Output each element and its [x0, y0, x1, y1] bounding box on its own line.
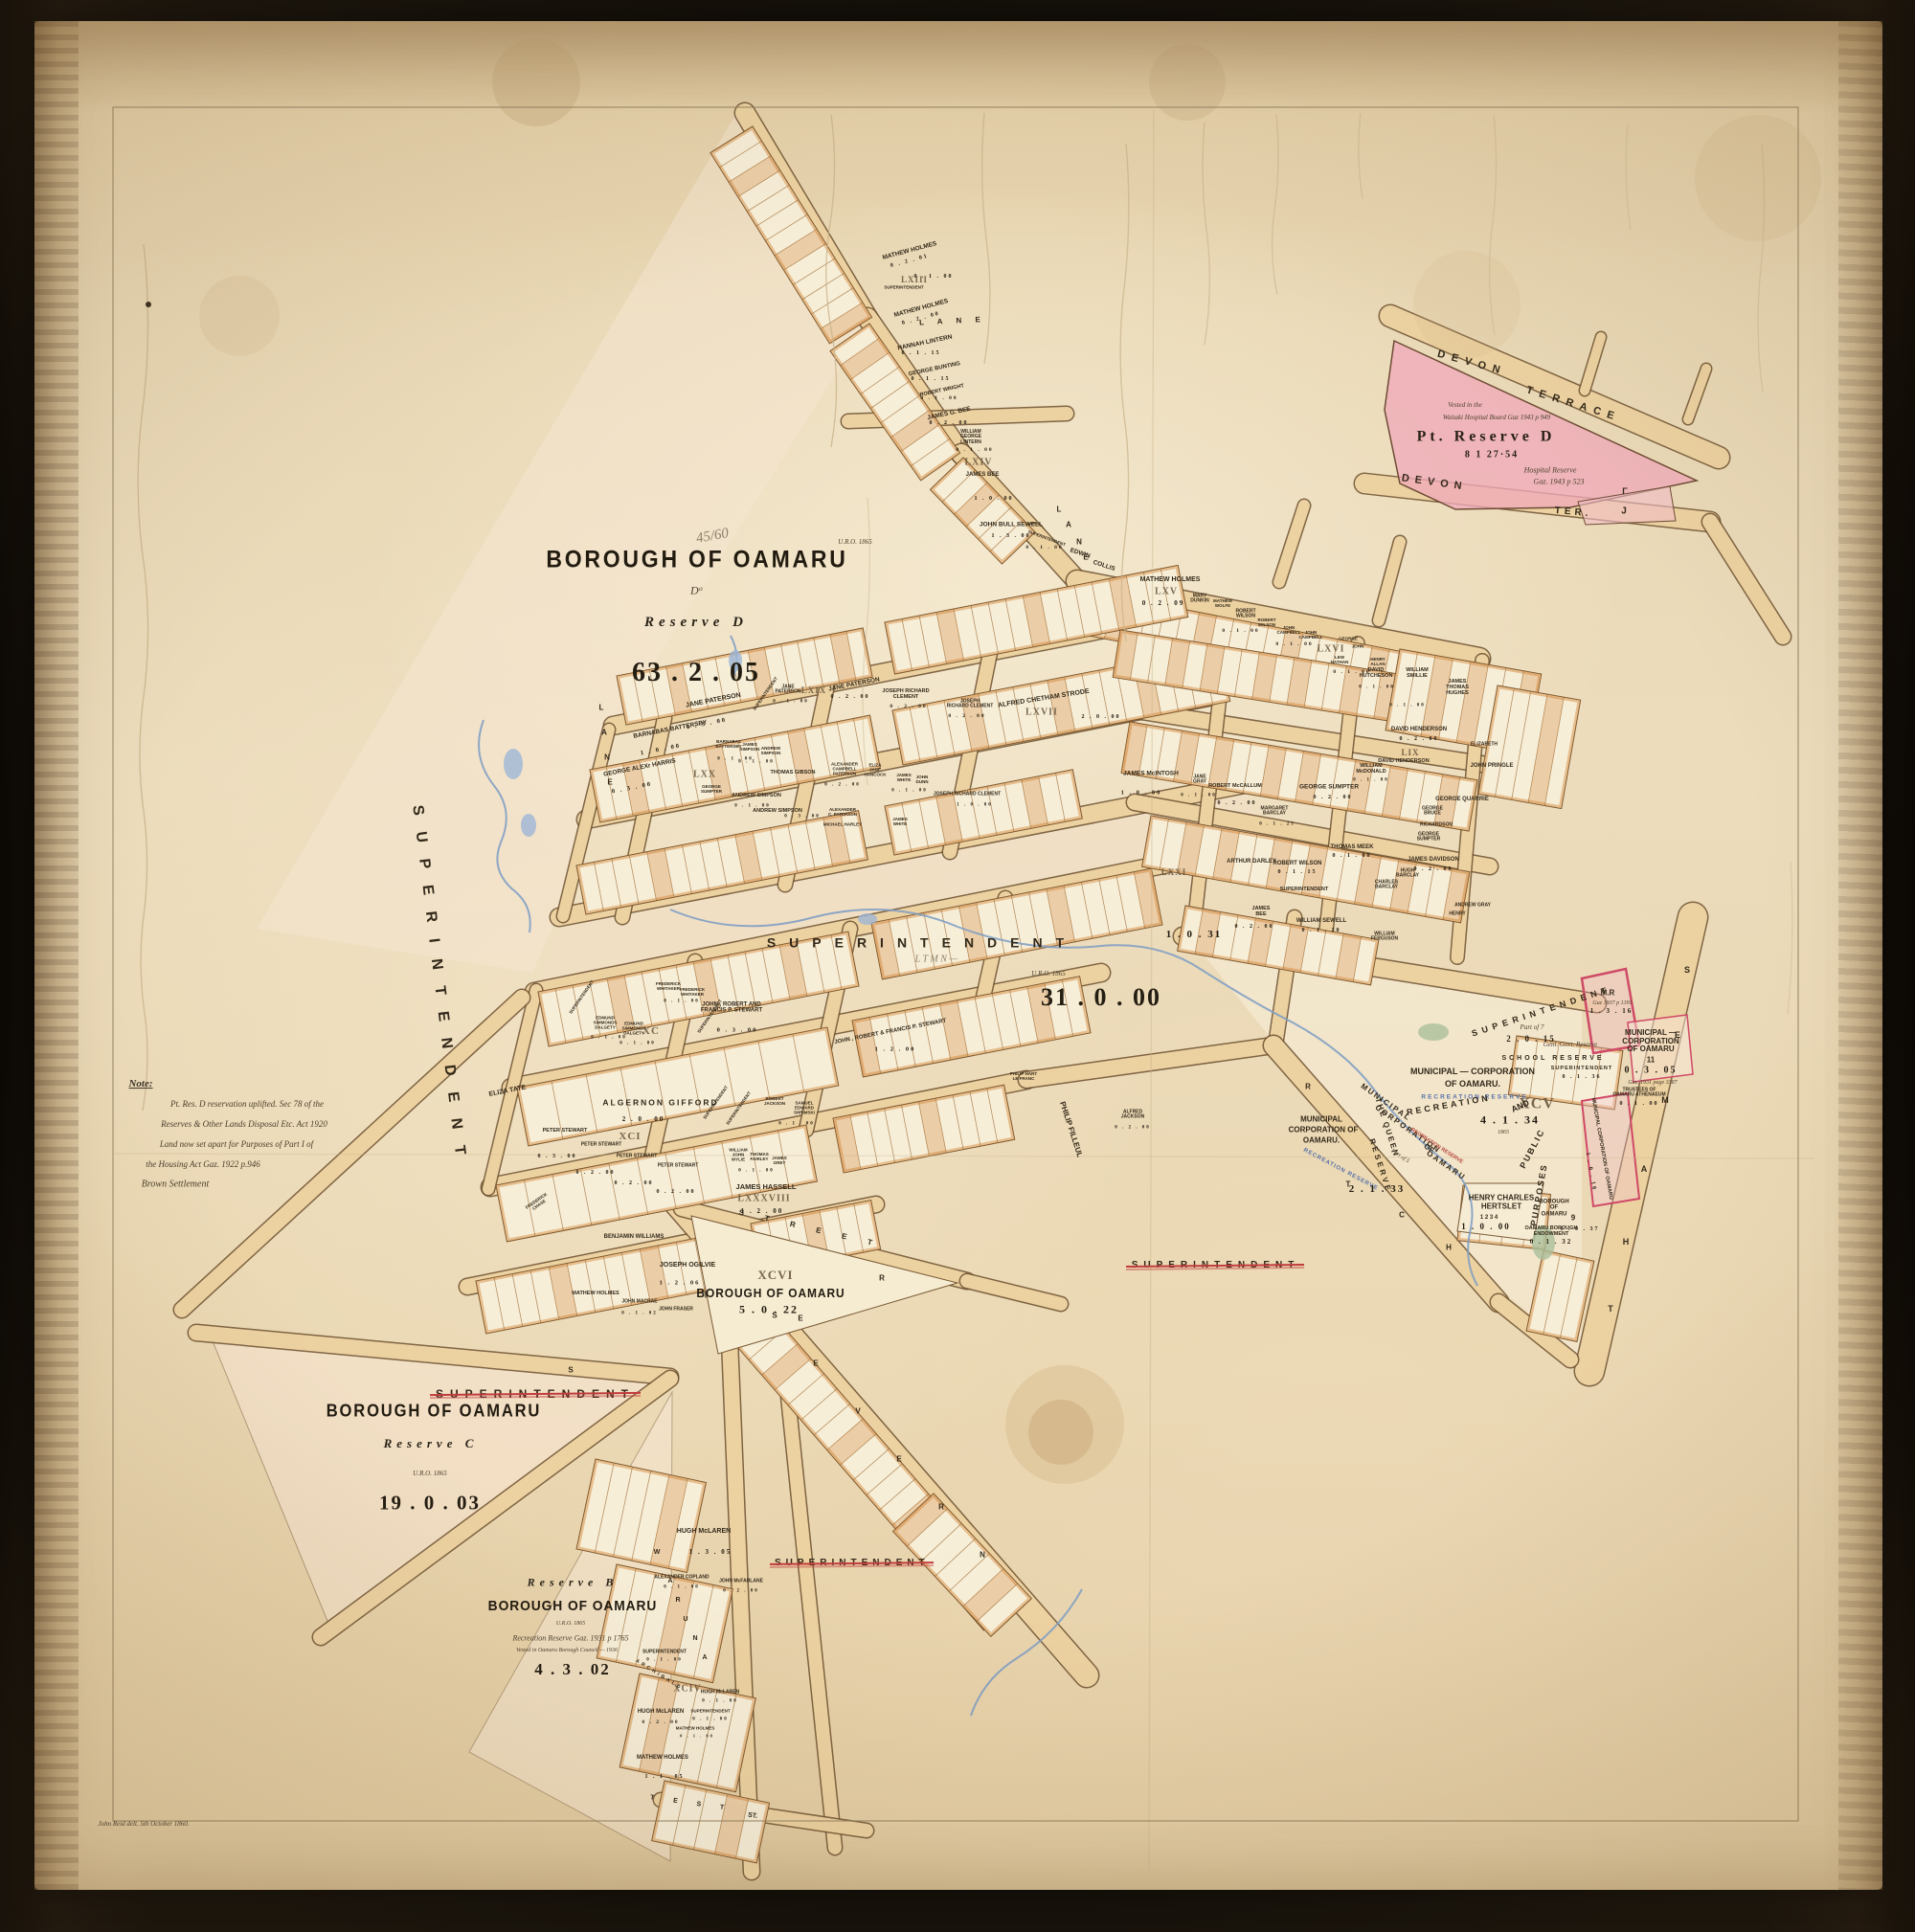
map-label: MATHEW HOLMES [637, 1755, 688, 1761]
map-label: Gaz. 1943 p 523 [1534, 479, 1585, 487]
map-label: 0 . 1 . 00 [956, 448, 993, 454]
map-label: N [980, 1552, 985, 1561]
map-label: JAMES THOMAS HUGHES [1446, 680, 1469, 697]
map-label: 1 . 2 . 00 [875, 1045, 916, 1052]
map-label: 2 . 0 . 00 [1082, 714, 1121, 720]
map-label: E [1675, 1031, 1680, 1041]
map-label: ELIZA TATE [488, 1085, 527, 1099]
map-label: 1 . 0 . 18 [1584, 1152, 1596, 1192]
map-label: JAMES SIMPSON [740, 743, 760, 753]
map-label: OAMARU. [1303, 1137, 1340, 1146]
map-label: MATHEW HOLMES [572, 1292, 619, 1297]
map-label: M.R [1601, 990, 1615, 999]
map-label: JAMES G. BEE [927, 406, 972, 421]
map-label: 0 . 2 . 00 [948, 714, 985, 720]
map-label: LXX [693, 771, 716, 781]
map-label: ANDREW GRAY [1454, 903, 1491, 908]
map-label: 0 . 3 . 00 [717, 1026, 758, 1033]
map-label: SUPERINTENDENT [726, 1091, 753, 1127]
map-label: 1 . 1 . 05 [645, 1774, 685, 1780]
map-label: 0 . 1 . 00 [914, 274, 954, 280]
map-label: E [813, 1360, 818, 1369]
map-label: L [599, 705, 604, 713]
map-label: COLLIS [1093, 559, 1116, 573]
map-label: 8 1 27·54 [1465, 451, 1519, 461]
map-labels: BOROUGH OF OAMARUDᵒReserve D63 . 2 . 054… [0, 0, 1915, 1932]
map-label: S [568, 1367, 573, 1376]
street-test: T E S T [650, 1794, 733, 1813]
map-label: OF OAMARU. [1445, 1080, 1500, 1090]
map-label: XCVI [757, 1269, 793, 1282]
map-label: 1 . 3 . 00 [992, 533, 1031, 539]
map-label: ALEXANDER CAMPBELL PATERSON [831, 763, 858, 777]
map-label: SAMUEL EDWARD SHRIMSKI [794, 1102, 815, 1116]
map-label: BOROUGH OF OAMARU [1539, 1199, 1568, 1217]
map-label: Part of 7 [1521, 1024, 1544, 1032]
map-label: E [607, 779, 612, 788]
map-label: PHILIP FILLEUL [1058, 1101, 1084, 1158]
map-label: FREDERICK WHITAKER [656, 982, 681, 992]
map-label: JAMES DAVIDSON [1408, 857, 1459, 863]
map-label: MUNICIPAL — CORPORATION OF OAMARU [1622, 1029, 1678, 1054]
map-label: THOMAS MEEK [1331, 844, 1374, 850]
map-label: SUPERINTENDENT [884, 286, 923, 291]
map-label: GEORGE SUMPTER [1417, 833, 1440, 843]
map-label: 0 . 1 . 00 [920, 396, 957, 402]
map-label: T [1346, 1181, 1351, 1190]
map-label: M [1661, 1096, 1669, 1106]
map-label: EDMUND SIMMONDS DALGETY [622, 1022, 646, 1037]
map-label: 0 . 1 . 00 [778, 1121, 815, 1126]
map-label: THOMAS FAIRLEY [750, 1153, 769, 1162]
map-label: MATHEW HOLMES [1140, 576, 1201, 584]
street-street: S T R E E T [738, 1209, 883, 1250]
map-label: 0 . 2 . 00 [930, 420, 969, 426]
street-devon-terrace: DEVON [1436, 349, 1508, 379]
map-label: ELIZABETH [1471, 742, 1498, 747]
map-label: ROBERT WILSON [1258, 618, 1276, 628]
map-label: 0 . 1 . 00 [664, 999, 700, 1003]
map-label: PETER STEWART [658, 1163, 699, 1168]
map-label: 0 . 1 . 20 [1302, 928, 1341, 933]
map-label: ROBERT WILSON [1273, 861, 1322, 866]
map-label: MATHEW HOLMES [676, 1727, 714, 1732]
map-label: WILLIAM JOHN WYLIE [729, 1149, 747, 1163]
map-label: 1 . 0 . 00 [640, 742, 681, 756]
map-label: SUPERINTENDENT [436, 1387, 635, 1401]
map-label: 0 . 1 . 00 [1025, 546, 1063, 551]
map-label: JOHN PRINGLE [1470, 763, 1513, 769]
map-label: 1865 [1498, 1130, 1509, 1135]
drafter-signature: John Reid delt. 5th October 1860. [98, 1821, 189, 1829]
map-label: LXVII [1025, 708, 1058, 719]
map-label: 0 . 1 . 00 [738, 759, 775, 764]
map-label: U [683, 1616, 687, 1624]
map-label: JOHN [1352, 645, 1364, 650]
map-label: 11 [1647, 1057, 1655, 1066]
reserve-d-area: 63 . 2 . 05 [632, 659, 760, 687]
map-label: 0 . 2 . 00 [657, 1189, 696, 1195]
map-label: ROBERT WILSON [1235, 610, 1255, 620]
map-label: E [896, 1456, 901, 1465]
map-label: A [667, 1578, 672, 1585]
map-label: R [938, 1504, 944, 1513]
map-label: 0 . 1 . 15 [912, 376, 951, 382]
map-label: 1 . 3 . 05 [689, 1549, 732, 1557]
map-label: 0 . 2 . 00 [890, 705, 927, 710]
map-label: JOSEPH OGILVIE [660, 1262, 715, 1269]
map-label: SUPERINTENDENT [642, 1650, 687, 1654]
map-label: JAMES BEE [1252, 907, 1271, 918]
map-label: 0 . 2 . 00 [1414, 866, 1453, 872]
map-label: Land now set apart for Purposes of Part … [160, 1140, 313, 1150]
map-label: CHARLES BARCLAY [1375, 881, 1398, 891]
map-label: ARCHIBALD [635, 1659, 684, 1693]
map-label: JAMES HASSELL [736, 1183, 797, 1191]
map-label: 1 . 2 . 06 [660, 1279, 701, 1286]
map-label: U.R.O. 1865 [1031, 971, 1065, 978]
map-label: SUPERINTENDENT [409, 804, 470, 1172]
map-label: E [798, 1315, 802, 1324]
map-label: JAMES WHITE [896, 774, 912, 783]
map-label: MATHEW WOLFE [1213, 599, 1232, 609]
map-label: 0 . 3 . 00 [538, 1154, 577, 1159]
map-label: 0 . 1 . 00 [1359, 685, 1395, 689]
map-label: SUPERINTENDENT [1280, 887, 1328, 893]
map-label: R [1305, 1084, 1311, 1092]
map-label: HUGH BARCLAY [1396, 869, 1419, 880]
map-label: 0 . 1 . 25 [1259, 821, 1295, 826]
map-label: Reserve B [528, 1577, 619, 1589]
map-label: H [1446, 1245, 1452, 1253]
map-label: ROBERT McCALLUM [1208, 784, 1262, 790]
map-label: ALEXANDER COPLAND [654, 1575, 709, 1580]
map-label: RICHARDSON [1420, 822, 1453, 827]
map-label: ELIZA JANE HANCOCK [865, 764, 887, 778]
map-label: JOSEPH RICHARD CLEMENT [934, 792, 1001, 797]
map-label: Hospital Reserve [1524, 467, 1577, 476]
map-label: 45/60 [695, 526, 730, 547]
map-label: 0 . 1 . 00 [1620, 1101, 1659, 1107]
map-label: N [604, 754, 610, 763]
map-label: 2 . 0 . 00 [622, 1116, 665, 1124]
map-label: Genl. Govt. Reserve [1543, 1042, 1597, 1049]
map-label: N [692, 1635, 697, 1643]
map-label: SCHOOL RESERVE [1501, 1055, 1604, 1063]
map-label: JAMES BEE [966, 472, 1000, 478]
map-label: JAMES WHITE [892, 818, 908, 827]
map-label: THOMAS GIBSON [770, 771, 815, 776]
map-label: HENRY [1449, 911, 1465, 916]
map-label: WILLIAM SEWELL [1296, 918, 1346, 924]
map-label: ARTHUR DARLEY [1227, 859, 1276, 865]
map-label: 0 . 3 . 00 [611, 780, 652, 795]
map-label: JANE PATERSON [775, 685, 800, 696]
map-label: 0 . 2 . 00 [1115, 1125, 1151, 1130]
map-label: 0 . 0 . 37 [1561, 1226, 1600, 1232]
map-label: 0 . 1 . 00 [1181, 793, 1217, 798]
map-label: WILLIAM FERGUSON [1371, 932, 1398, 943]
map-label: GEORGE QUARRIE [1435, 797, 1489, 802]
map-label: L T M N — [915, 955, 958, 966]
map-label: 0 . 1 . 00 [1333, 853, 1372, 859]
map-label: 0 . 1 . 00 [646, 1657, 683, 1662]
map-label: JANE PATERSON [828, 676, 881, 692]
map-label: ALFRED JACKSON [1121, 1111, 1144, 1121]
map-label: SUPERINTENDENT [1551, 1067, 1612, 1072]
map-label: JOHN CAMPBELL [1299, 631, 1323, 640]
map-label: Dᵒ [690, 585, 702, 597]
map-label: 0 . 3 . 00 [784, 814, 821, 819]
map-label: 0 . 1 . 00 [1275, 642, 1313, 648]
map-label: 0 . 1 . 00 [738, 1168, 775, 1173]
map-label: 0 . 1 . 00 [1222, 629, 1259, 635]
map-label: 0 . 1 . 00 [891, 788, 928, 793]
map-label: SUPERINTENDENT [569, 980, 596, 1016]
map-label: Reserve C [384, 1437, 479, 1450]
map-label: 5 . 0 . 22 [739, 1304, 799, 1316]
map-label: BOROUGH OF OAMARU [696, 1287, 845, 1300]
map-label: 0 . 2 . 00 [576, 1170, 616, 1176]
map-label: ANDREW SIMPSON [761, 747, 781, 756]
map-label: 0 . 1 . 32 [1530, 1239, 1573, 1247]
map-label: JANE GRAY [1193, 775, 1206, 786]
map-label: Gaz 1937 p 1391 [1592, 1000, 1632, 1006]
map-label: U.R.O. 1865 [556, 1621, 585, 1627]
map-label: JANE PATERSON [686, 692, 742, 710]
map-label: Brown Settlement [142, 1180, 209, 1191]
map-label: HANNAH LINTERN [897, 334, 953, 352]
map-label: 2 . 1 . 33 [1349, 1184, 1406, 1196]
map-label: 0 . 2 . 00 [831, 694, 870, 700]
map-label: L [1057, 506, 1062, 515]
map-label: ST. [747, 1812, 757, 1821]
reserve-b-title: BOROUGH OF OAMARU [488, 1599, 658, 1614]
map-label: SUPERINTENDENT [775, 1558, 930, 1568]
map-label: S [772, 1313, 777, 1321]
map-label: BARNABAS BATTERSBY [715, 740, 741, 750]
map-label: T [704, 1292, 709, 1301]
superintendent-label: SUPERINTENDENT [767, 935, 1077, 950]
map-label: A [702, 1654, 707, 1662]
map-label: Γ [1622, 487, 1627, 497]
map-label: T [1608, 1305, 1613, 1314]
map-label: 0 . 1 . 00 [620, 1041, 656, 1045]
map-label: MUNICIPAL — CORPORATION [1410, 1067, 1535, 1077]
map-label: Gaz. 1931 page 3387 [1628, 1080, 1677, 1086]
map-label: Vested in Oamaru Borough Council — 1936 [516, 1648, 618, 1653]
map-label: HENRY CHARLES HERTSLET [1469, 1194, 1534, 1210]
map-label: 0 . 2 . 00 [1400, 736, 1439, 742]
map-label: WILLIAM SMILLIE [1406, 668, 1429, 680]
pt-reserve-d-title: Pt. Reserve D [1417, 428, 1556, 444]
map-label: 1 2 3 4 [1480, 1215, 1498, 1221]
map-label: FREDERICK CHASE [525, 1192, 551, 1214]
map-label: the Housing Act Gaz. 1922 p.946 [146, 1160, 260, 1170]
map-label: PETER STEWART [581, 1142, 622, 1147]
map-label: 0 . 1 . 02 [621, 1311, 658, 1315]
map-label: LEW NATHAN [1331, 656, 1349, 665]
map-label: JOSEPH RICHARD CLEMENT [947, 700, 994, 710]
map-label: LXXXVIII [737, 1195, 790, 1205]
map-label: JAMES GREY [772, 1157, 787, 1166]
note-heading: Note: [128, 1079, 152, 1090]
map-label: Recreation Reserve Gaz. 1931 p 1765 [512, 1635, 628, 1644]
superintendent-area: 31 . 0 . 00 [1041, 984, 1161, 1011]
map-label: R [675, 1597, 680, 1605]
map-label: H [1623, 1238, 1630, 1247]
map-label: PETER STEWART [617, 1154, 658, 1158]
map-label: N [1076, 539, 1082, 548]
map-label: 0 . 2 . 09 [1142, 600, 1185, 608]
map-label: 0 . 2 . 00 [824, 782, 861, 787]
map-label: 0 . 1 . 00 [773, 699, 809, 704]
map-label: LXXI [1161, 868, 1187, 878]
street-lane: L A N E [919, 316, 986, 327]
map-canvas: BOROUGH OF OAMARUDᵒReserve D63 . 2 . 054… [0, 0, 1915, 1932]
map-label: 0 . 2 . 00 [615, 1180, 654, 1186]
map-label: 1 . 0 . 00 [1121, 789, 1162, 796]
map-label: U.R.O. 1865 [413, 1471, 446, 1478]
map-label: R [879, 1275, 885, 1284]
map-label: A [1641, 1165, 1648, 1175]
map-label: LIX [1401, 749, 1419, 758]
map-label: 1 . 0 . 00 [1461, 1223, 1511, 1232]
map-label: HUGH McLAREN [638, 1709, 684, 1715]
map-label: LXIV [964, 459, 992, 469]
map-label: LXIX [801, 686, 827, 696]
map-label: S [1684, 966, 1690, 976]
map-label: MUNICIPAL [1300, 1116, 1342, 1125]
map-label: A [1066, 522, 1071, 530]
map-label: E [1083, 554, 1088, 563]
map-label: ALGERNON GIFFORD [602, 1098, 718, 1107]
map-label: 0 . 2 . 00 [1314, 795, 1353, 800]
map-label: ROBERT JACKSON [764, 1097, 785, 1107]
map-label: JOHN FRASER [659, 1307, 693, 1312]
map-label: GEORGE [1339, 638, 1358, 642]
map-label: HENRY ALLAN [1370, 658, 1386, 667]
map-label: 0 . 2 . 00 [1218, 800, 1257, 806]
map-label: GEORGE ALEXr HARRIS [603, 757, 677, 778]
map-label: Vested in the [1448, 402, 1481, 410]
map-label: HUGH McLAREN [677, 1528, 731, 1536]
map-label: WILLIAM GEORGE LINTERN [960, 430, 981, 445]
map-label: Waitaki Hospital Board Gaz 1943 p 949 [1443, 415, 1550, 422]
map-label: WILLIAM McDONALD [1356, 764, 1386, 775]
map-label: 0 . 1 . 00 [1333, 670, 1370, 676]
map-label: LXVI [1317, 645, 1344, 656]
map-label: 0 . 1 . 00 [680, 1735, 714, 1740]
map-label: MARGARET BARCLAY [1261, 807, 1289, 818]
map-label: JOHN McFARLANE [719, 1579, 763, 1584]
map-label: ALEXANDER C. PATERSON [828, 808, 857, 818]
map-label: JOSEPH RICHARD CLEMENT [882, 689, 929, 701]
map-label: FREDERICK WHITAKER [680, 988, 705, 998]
map-label: BARNABAS BATTERSBY [633, 719, 708, 740]
map-label: 0 . 1 . 15 [1278, 869, 1318, 875]
map-label: LXV [1155, 588, 1178, 598]
map-label: SUPERINTENDENT [690, 1710, 730, 1715]
map-label: 1 . 0 . 00 [975, 496, 1014, 502]
map-label: 4 . 1 . 34 [1480, 1114, 1540, 1127]
map-label: Reserves & Other Lands Disposal Etc. Act… [161, 1120, 327, 1130]
map-label: 0 . 1 . 00 [664, 1584, 700, 1589]
map-label: MICHAEL HARLEY [823, 823, 862, 828]
map-label: GEORGE SUMPTER [1299, 783, 1359, 790]
map-label: V [855, 1408, 860, 1417]
map-label: C [1399, 1212, 1405, 1221]
map-label: CORPORATION OF [1289, 1127, 1359, 1135]
reserve-c-area: 19 . 0 . 03 [379, 1493, 481, 1515]
map-label: 0 . 2 . 00 [1235, 924, 1274, 930]
map-label: TRUSTEES OF OAMARU ATHENAEUM [1612, 1089, 1665, 1099]
map-label: TER. [1554, 506, 1592, 520]
map-label: W [654, 1549, 661, 1557]
map-label: 0 . 2 . 00 [723, 1588, 759, 1593]
map-label: DEVON [1401, 473, 1468, 493]
map-label: 1 . 0 . 00 [957, 802, 993, 807]
map-label: JOHN , ROBERT & FRANCIS P. STEWART [834, 1018, 947, 1045]
map-label: U.R.O. 1865 [838, 539, 871, 547]
map-label: HUGH McLAREN [701, 1690, 739, 1695]
map-label: JOHN MACRAE [621, 1299, 657, 1304]
map-label: SUPERINTENDENT [1132, 1260, 1300, 1270]
map-label: 0 . 1 . 00 [692, 1717, 729, 1721]
map-label: 0 . 1 . 36 [1563, 1074, 1602, 1080]
map-label: 0 . 1 . 00 [1353, 777, 1389, 782]
map-label: J [1621, 507, 1627, 518]
map-label: BENJAMIN WILLIAMS [604, 1234, 665, 1240]
map-label: JOHN DUNN [916, 775, 929, 785]
map-label: A [601, 730, 607, 738]
reserve-b-area: 4 . 3 . 02 [534, 1661, 611, 1678]
map-label: 0 . 1 . 00 [1389, 703, 1426, 708]
map-label: 0 . 1 . 15 [902, 350, 941, 356]
map-label: Reserve D [644, 615, 748, 630]
map-label: 0 . 3 . 05 [1625, 1067, 1678, 1077]
map-label: 0 . 1 . 00 [702, 1698, 738, 1703]
map-label: JOHN BULL SEWELL [980, 521, 1043, 528]
map-label: DAVID HENDERSON [1391, 727, 1447, 732]
map-label: GEORGE SUMPTER [701, 785, 722, 795]
map-label: 1 . 0 . 31 [1166, 930, 1223, 941]
map-label: Pt. Res. D reservation uplifted. Sec 78 … [170, 1100, 324, 1110]
map-label: 1 . 3 . 16 [1590, 1008, 1633, 1016]
map-label: GEORGE BRUCE [1422, 807, 1443, 818]
map-label: 0 . 2 . 00 [642, 1720, 679, 1726]
map-label: JOHN CAMPBELL [1277, 626, 1301, 636]
map-label: XCI [619, 1132, 641, 1143]
map-label: EDMUND SIMMONDS DALGETY [594, 1017, 618, 1031]
map-label: MARY DUNKIN [1190, 595, 1208, 605]
map-label: 9 [1571, 1215, 1575, 1224]
reserve-d-title: BOROUGH OF OAMARU [546, 548, 847, 573]
map-label: ANDREW SIMPSON [732, 794, 781, 799]
map-label: JAMES McINTOSH [1123, 770, 1179, 776]
map-label: PHILIP HART LE FRANC [1010, 1072, 1037, 1082]
reserve-c-title: BOROUGH OF OAMARU [327, 1402, 541, 1420]
map-label: PETER STEWART [543, 1129, 588, 1134]
